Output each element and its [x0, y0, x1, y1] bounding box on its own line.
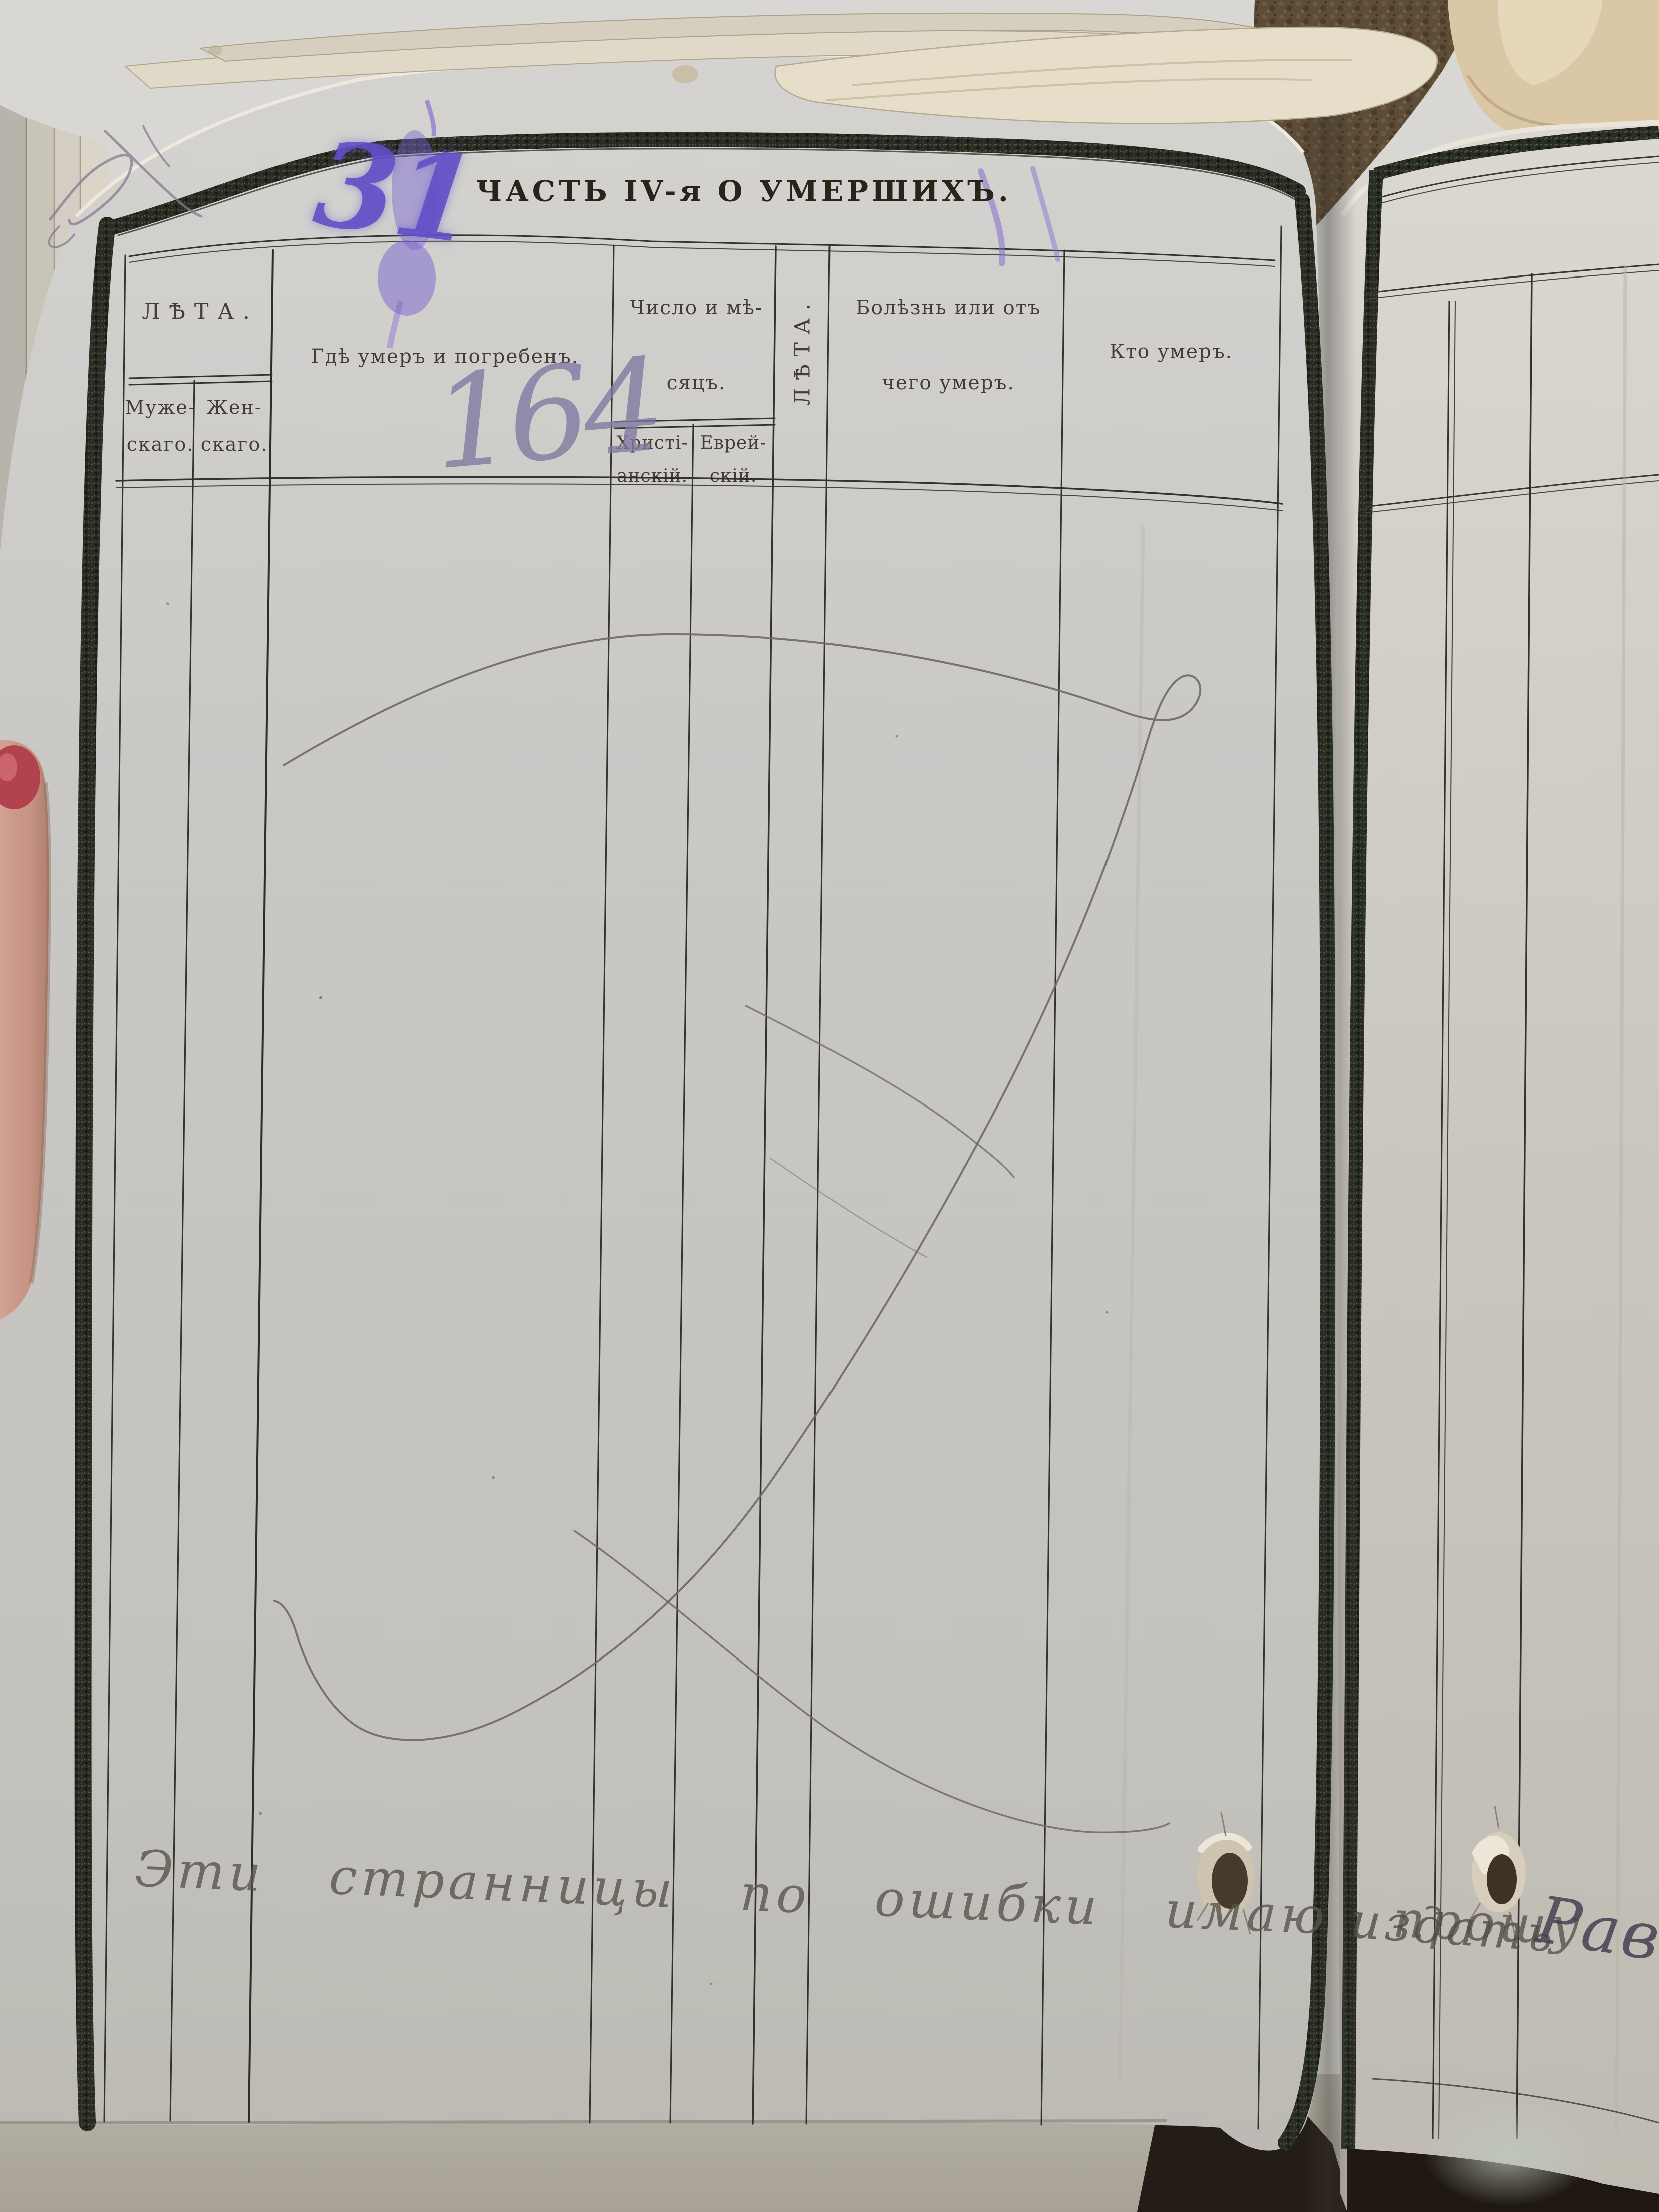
- col-header-age-male: Муже- скаго.: [125, 389, 196, 463]
- col-header-age-female: Жен- скаго.: [201, 389, 268, 463]
- col-header-who-died: Кто умеръ.: [1110, 341, 1233, 363]
- col-header-age-group: ЛѢТА.: [142, 299, 259, 324]
- col-header-age-vertical: ЛѢТА.: [790, 296, 815, 406]
- col-header-cause: Болѣзнь или отъ чего умеръ.: [856, 270, 1041, 421]
- page-title: ЧАСТЬ IV-я О УМЕРШИХЪ.: [476, 175, 1011, 208]
- scanned-register-page: ЧАСТЬ IV-я О УМЕРШИХЪ. ЛѢТА. Муже- скаго…: [0, 0, 1659, 2212]
- handwritten-corner-numeral: 31: [308, 114, 481, 270]
- col-header-date-jewish: Еврей- скій.: [700, 427, 766, 493]
- handwritten-page-number: 164: [427, 331, 665, 499]
